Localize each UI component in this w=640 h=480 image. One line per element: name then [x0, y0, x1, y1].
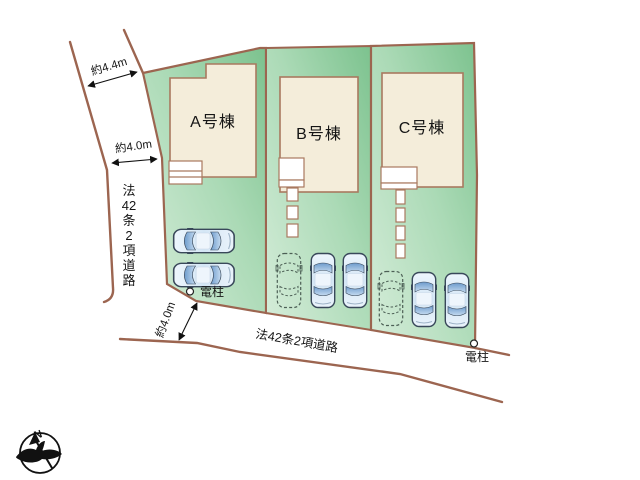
left-road-label-char: 路 [122, 273, 135, 288]
building-c-stepping-stone [396, 226, 405, 240]
left-road-label-char: 道 [122, 258, 135, 273]
building-b-porch [279, 158, 304, 180]
building-c-stepping-stone [396, 208, 405, 222]
left-road-label-char: 42 [122, 198, 136, 213]
utility-pole-label-a: 電柱 [200, 284, 224, 299]
north-compass-icon: N [16, 428, 62, 473]
car-icon [411, 273, 437, 327]
left-road-label-char: 条 [122, 213, 135, 228]
building-c-porch [381, 167, 417, 183]
utility-pole-label-c: 電柱 [465, 349, 489, 364]
building-a-porch [169, 161, 202, 184]
dimension-arrow-left [112, 159, 157, 163]
bottom-road-label: 法42条2項道路 [254, 326, 339, 355]
utility-pole-marker [187, 288, 194, 295]
dimension-label-top: 約4.4m [89, 54, 129, 78]
car-icon [174, 228, 234, 254]
building-c-stepping-stone [396, 244, 405, 258]
building-a-label: A号棟 [190, 113, 236, 131]
building-b-stepping-stone [287, 188, 298, 201]
site-plan-page: 約4.4m 約4.0m 約4.0m A号棟 B号棟 C号棟 法 42 条 2 項… [0, 0, 640, 480]
dimension-label-left: 約4.0m [114, 137, 153, 156]
building-c-label: C号棟 [399, 119, 446, 137]
left-road-label-char: 2 [125, 228, 132, 243]
left-road-label-char: 項 [122, 243, 135, 258]
building-b-step [279, 180, 304, 187]
dimension-label-bottom: 約4.0m [152, 300, 178, 340]
left-road-label: 法 42 条 2 項 道 路 [122, 183, 136, 288]
left-road-label-char: 法 [122, 183, 135, 198]
site-plan-drawing: 約4.4m 約4.0m 約4.0m A号棟 B号棟 C号棟 法 42 条 2 項… [0, 0, 640, 480]
building-b-stepping-stone [287, 206, 298, 219]
building-c-step [381, 183, 417, 189]
building-c-stepping-stone [396, 190, 405, 204]
building-b-label: B号棟 [296, 125, 342, 143]
building-b-stepping-stone [287, 224, 298, 237]
car-icon [444, 274, 470, 328]
car-icon [342, 254, 368, 308]
utility-pole-marker [471, 340, 478, 347]
dimension-arrow-bottom [179, 303, 197, 340]
car-icon [310, 254, 336, 308]
